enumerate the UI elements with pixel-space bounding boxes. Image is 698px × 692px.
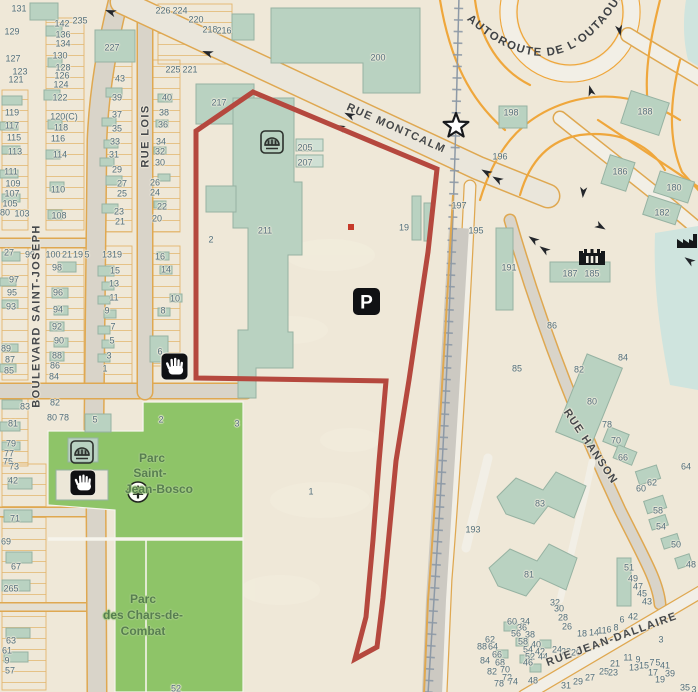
svg-text:P: P (360, 293, 373, 314)
parking-icon[interactable]: P (353, 288, 380, 315)
fort-museum-icon[interactable] (579, 249, 605, 265)
building-198 (499, 106, 527, 128)
open-hand-icon[interactable] (70, 470, 96, 496)
conifer-tree-icon[interactable] (128, 482, 148, 502)
building-227 (95, 30, 135, 62)
map-viewport[interactable]: P AUTOROUTE DE L'OUTAOUAIS 1311291271231… (0, 0, 698, 692)
map-canvas: P AUTOROUTE DE L'OUTAOUAIS (0, 0, 698, 692)
open-hand-icon[interactable] (161, 353, 188, 380)
point-marker (348, 224, 354, 230)
building-191 (496, 228, 513, 310)
